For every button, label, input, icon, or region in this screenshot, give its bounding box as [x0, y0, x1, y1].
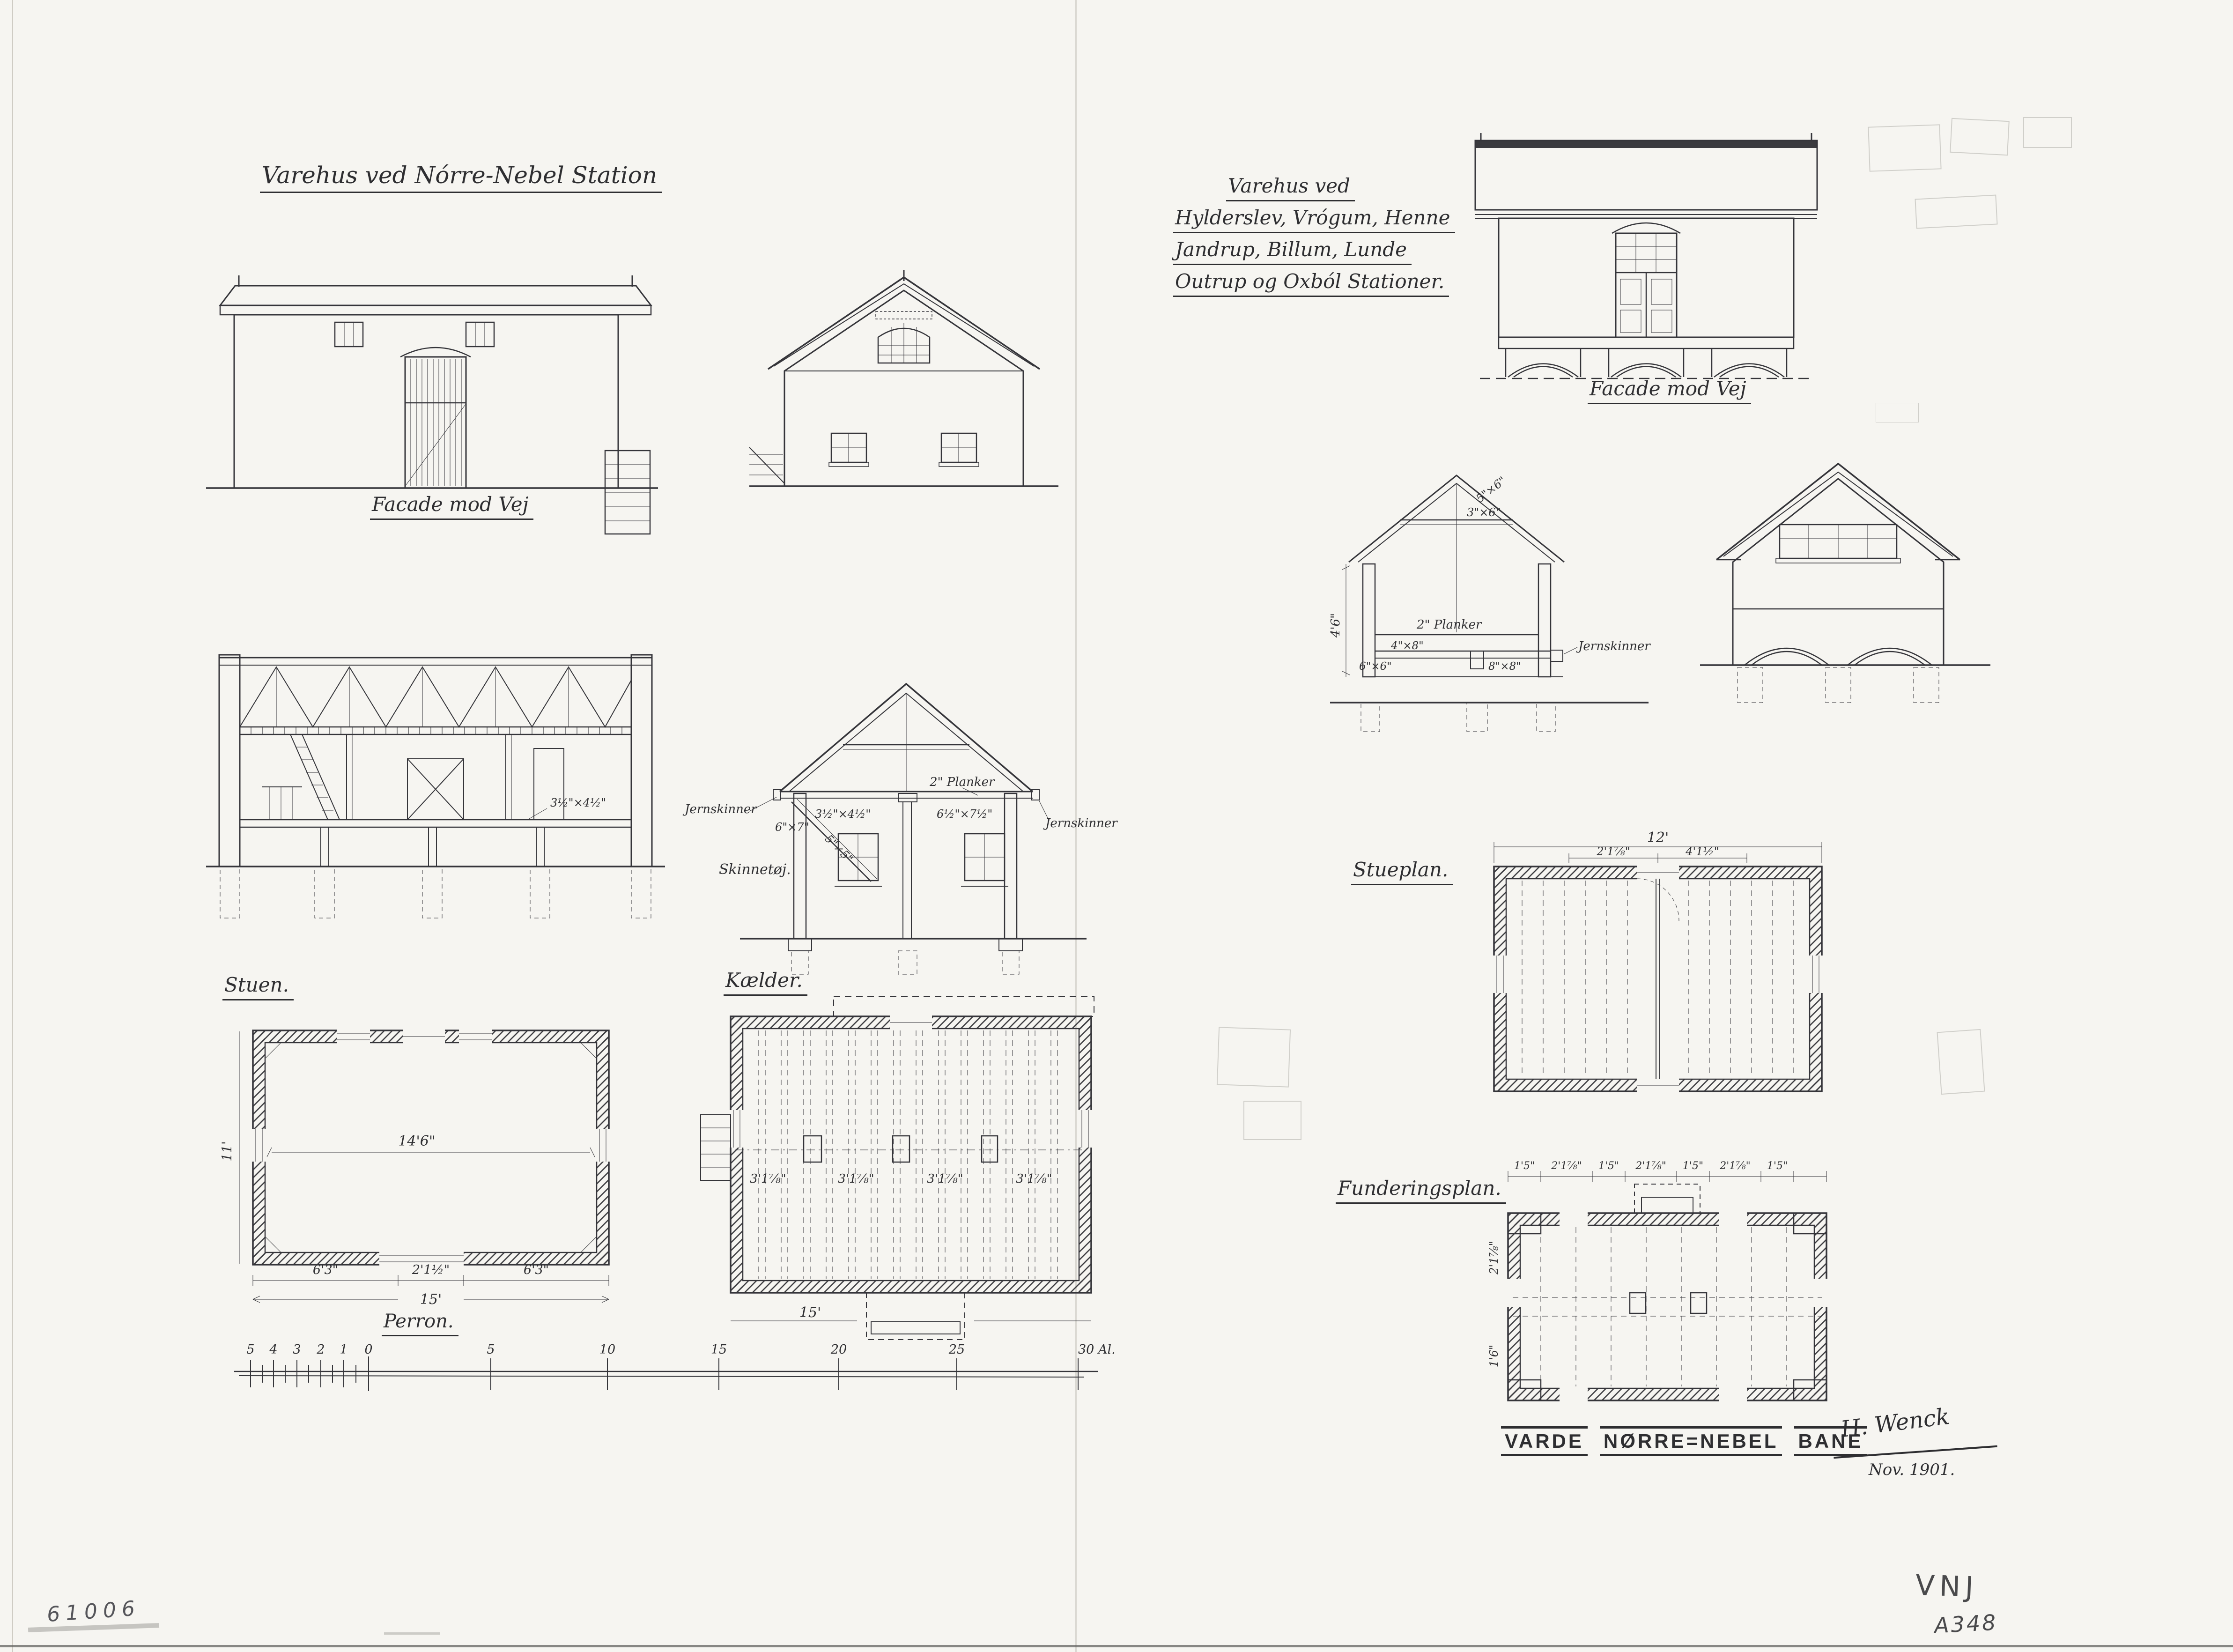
dim-label: 2'1⅞"	[1487, 1241, 1501, 1274]
right-title-line3: Jandrup, Billum, Lunde	[1173, 238, 1412, 265]
dim-label: 3"×6"	[1467, 506, 1501, 519]
stamp-word: NØRRE=NEBEL	[1600, 1426, 1782, 1456]
footing	[999, 939, 1022, 951]
plan-openings	[730, 1015, 1092, 1148]
interior-pier	[1691, 1293, 1707, 1313]
top-dims: 1'5" 2'1⅞" 1'5" 2'1⅞" 1'5" 2'1⅞" 1'5"	[1508, 1160, 1826, 1182]
base-band	[1499, 337, 1794, 348]
foundation-piers	[1738, 667, 1939, 703]
label-planker: 2" Planker	[1416, 618, 1482, 632]
label-jernskinner: Jernskinner	[1576, 639, 1651, 653]
facade-left-wall	[234, 315, 618, 488]
stamp-word: VARDE	[1501, 1426, 1588, 1456]
total-dim: 15'	[253, 1291, 609, 1308]
label-skinnetoej: Skinnetøj.	[719, 861, 791, 878]
svg-text:1'5": 1'5"	[1514, 1160, 1535, 1172]
bay-dim: 3'1⅞"	[750, 1172, 786, 1186]
total-dim: 15'	[731, 1304, 1091, 1321]
scale-major-ticks	[491, 1358, 1078, 1390]
interior-pier	[1630, 1293, 1646, 1313]
platform-outline	[834, 997, 1094, 1016]
scale-label: 30 Al.	[1078, 1342, 1116, 1357]
scale-label: 5	[487, 1342, 495, 1357]
caption-stueplan: Stueplan.	[1351, 858, 1453, 885]
scale-label: 3	[293, 1342, 301, 1357]
scale-label: 4	[269, 1342, 277, 1357]
main-floor	[240, 820, 631, 827]
gable-left-drawing	[749, 267, 1058, 529]
dim-label: 8"×8"	[1488, 660, 1521, 673]
plan-walls	[731, 1016, 1091, 1293]
interior-dim: 14'6"	[267, 1133, 595, 1157]
right-title-line2: Hylderslev, Vrógum, Henne	[1173, 206, 1455, 233]
dim-label: 5"×5"	[822, 832, 856, 865]
scale-label: 15	[711, 1342, 727, 1357]
bay-dim: 3'1⅞"	[838, 1172, 874, 1186]
pencil-sketch	[1876, 403, 1919, 422]
dim-label: 6"×7"	[775, 821, 809, 834]
pencil-sketch	[1950, 118, 2010, 156]
stueplan-right-drawing: 12' 2'1⅞" 4'1½"	[1452, 834, 1845, 1124]
pencil-sketch	[1217, 1027, 1291, 1087]
svg-text:1'5": 1'5"	[1767, 1160, 1788, 1172]
right-title-line1: Varehus ved	[1226, 174, 1355, 201]
foundation-piers	[791, 951, 1019, 974]
pencil-sketch	[1868, 124, 1941, 171]
section-roof-truss	[219, 658, 652, 727]
plan-openings	[1493, 866, 1823, 1092]
svg-text:2'1⅞": 2'1⅞"	[1719, 1160, 1750, 1172]
dim-label: 4"×8"	[1390, 640, 1424, 652]
section-wall-right	[631, 655, 652, 867]
svg-text:6'3": 6'3"	[313, 1263, 338, 1277]
kaelder-plan-drawing: 3'1⅞" 3'1⅞" 3'1⅞" 3'1⅞" 15'	[693, 993, 1124, 1358]
floor-pier	[1471, 651, 1484, 669]
wall-height-dim: 4'6"	[1329, 564, 1350, 677]
svg-text:4'1½": 4'1½"	[1685, 845, 1719, 858]
gable-right-window-band	[1776, 525, 1900, 563]
iron-rail-hook	[1551, 650, 1563, 661]
bottom-stub	[866, 1293, 965, 1340]
facade-left-door	[400, 348, 471, 488]
dim-label: 6½"×7½"	[937, 807, 992, 821]
interior-stair	[262, 734, 340, 820]
pencil-sketch	[1243, 1101, 1301, 1140]
foundation-arches	[1506, 348, 1787, 377]
gable-section-left-drawing: 2" Planker Jernskinner Jernskinner 6"×7"…	[674, 674, 1087, 984]
label-jernskinner-right: Jernskinner	[1043, 816, 1118, 830]
svg-text:12': 12'	[1647, 830, 1669, 846]
svg-text:14'6": 14'6"	[398, 1133, 435, 1149]
scale-fine-ticks	[251, 1356, 369, 1391]
dim-label: 1'6"	[1487, 1345, 1501, 1367]
floor-plank-lines	[1522, 881, 1794, 1077]
section-wall-left	[219, 655, 240, 867]
foundation-arches	[1745, 648, 1932, 665]
loft-floor	[240, 727, 631, 734]
pencil-sketch	[1937, 1029, 1985, 1095]
foundation-piers	[220, 867, 651, 918]
stuen-plan-drawing: 14'6" 11' 6'3" 2'1½" 6'3" 15'	[197, 1002, 628, 1265]
svg-text:1'5": 1'5"	[1598, 1160, 1619, 1172]
bay-dim: 3'1⅞"	[1016, 1172, 1052, 1186]
dim-label: 6"×6"	[1359, 660, 1392, 673]
pencil-smudge	[384, 1632, 440, 1635]
scale-label: 1	[340, 1342, 348, 1357]
scale-label: 2	[316, 1342, 325, 1357]
svg-text:15': 15'	[420, 1291, 442, 1308]
foundation-piers	[1361, 703, 1555, 732]
archive-mark-a348: A348	[1934, 1609, 1998, 1638]
svg-text:2'1⅞": 2'1⅞"	[1596, 845, 1630, 858]
leader-line	[1564, 647, 1577, 654]
facade-left-window	[466, 322, 494, 347]
pencil-sketch	[2023, 117, 2072, 148]
wall-right	[1005, 793, 1017, 939]
section-right-drawing: 5"×6" 3"×6" 2" Planker 4"×8" 6"×6" 8"×8"…	[1330, 464, 1649, 745]
facade-right-drawing	[1461, 122, 1831, 403]
center-column	[898, 793, 917, 939]
svg-text:6'3": 6'3"	[524, 1263, 549, 1277]
scale-bar: 5 4 3 2 1 0 5 10 15 20 25 30 Al.	[220, 1335, 1119, 1400]
archive-mark-vnj: VNJ	[1915, 1569, 1979, 1604]
pencil-sketch	[1915, 194, 1997, 229]
caption-stuen: Stuen.	[222, 973, 294, 1000]
dim-label: 3½"×4½"	[550, 796, 606, 809]
scale-label: 5	[246, 1342, 254, 1357]
left-title: Varehus ved Nórre-Nebel Station	[260, 162, 662, 193]
gable-left-window	[939, 433, 979, 467]
svg-text:2'1½": 2'1½"	[412, 1263, 450, 1277]
left-dim: 11'	[219, 1031, 240, 1264]
gable-left-window	[829, 433, 869, 467]
section-left-drawing: 3½"×4½"	[206, 646, 665, 946]
label-planker: 2" Planker	[929, 775, 995, 789]
facade-right-door	[1612, 223, 1680, 337]
facade-left-cellar-steps	[605, 451, 650, 534]
plan-walls	[1507, 1212, 1827, 1401]
wall-left	[1363, 564, 1375, 677]
outside-stair	[701, 1115, 731, 1180]
signature: H. Wenck	[1839, 1403, 1951, 1443]
drawing-sheet: Varehus ved Nórre-Nebel Station Varehus …	[0, 0, 2233, 1652]
date-label: Nov. 1901.	[1869, 1460, 1955, 1479]
top-dims: 12' 2'1⅞" 4'1½"	[1494, 830, 1822, 863]
section-window	[961, 834, 1008, 886]
svg-text:15': 15'	[799, 1304, 821, 1321]
scale-label: 20	[830, 1342, 847, 1357]
svg-text:11': 11'	[219, 1141, 235, 1161]
grid-lines	[1513, 1227, 1822, 1386]
scale-label: 25	[948, 1342, 965, 1357]
leader-line	[529, 808, 547, 819]
gable-right-drawing	[1700, 454, 1990, 731]
scan-edge-bottom	[0, 1645, 2233, 1647]
funderingsplan-drawing: 1'5" 2'1⅞" 1'5" 2'1⅞" 1'5" 2'1⅞" 1'5"	[1471, 1157, 1855, 1429]
gable-left-wall	[784, 290, 1023, 486]
label-jernskinner-left: Jernskinner	[682, 802, 757, 816]
railway-stamp: VARDENØRRE=NEBELBANE	[1501, 1426, 1879, 1456]
top-stub	[1634, 1184, 1700, 1213]
bay-dim: 3'1⅞"	[927, 1172, 963, 1186]
gable-sign-band	[876, 311, 932, 319]
facade-left-roof	[220, 275, 651, 315]
gable-right-wall	[1733, 479, 1944, 665]
facade-left-window	[335, 322, 363, 347]
bottom-dims: 6'3" 2'1½" 6'3"	[253, 1263, 609, 1286]
scale-label: 10	[599, 1342, 615, 1357]
right-title-line4: Outrup og Oxból Stationer.	[1173, 270, 1449, 297]
footing	[788, 939, 812, 951]
dim-label: 3½"×4½"	[815, 807, 871, 821]
inventory-number: 61006	[46, 1596, 141, 1627]
gable-left-arched-window	[878, 323, 930, 363]
facade-right-roof	[1475, 133, 1817, 218]
facade-left-drawing	[206, 262, 665, 553]
svg-text:1'5": 1'5"	[1683, 1160, 1703, 1172]
scale-label: 0	[364, 1342, 372, 1357]
gable-left-steps	[749, 447, 784, 483]
dim-label: 5"×6"	[1473, 474, 1508, 505]
scan-edge-left	[12, 0, 13, 1652]
interior-cross-brace	[407, 759, 464, 820]
caption-perron: Perron.	[382, 1311, 458, 1336]
svg-text:4'6": 4'6"	[1329, 613, 1343, 638]
svg-text:2'1⅞": 2'1⅞"	[1551, 1160, 1582, 1172]
svg-text:2'1⅞": 2'1⅞"	[1635, 1160, 1666, 1172]
wall-right	[1538, 564, 1551, 677]
floor-posts	[321, 827, 544, 867]
leader-line	[1039, 800, 1049, 821]
